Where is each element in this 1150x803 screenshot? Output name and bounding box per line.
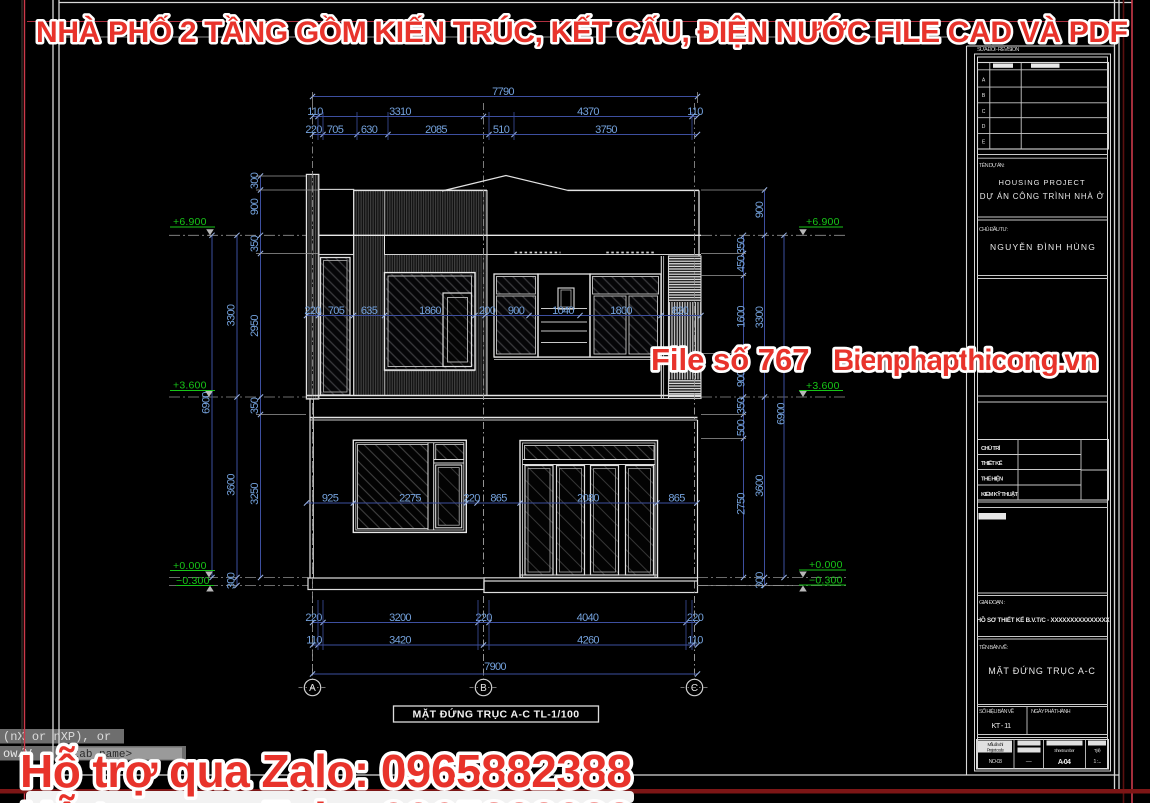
svg-text:2085: 2085 — [425, 124, 447, 136]
svg-text:4370: 4370 — [577, 106, 599, 118]
svg-text:350: 350 — [249, 397, 261, 414]
svg-text:110: 110 — [687, 106, 703, 118]
svg-text:630: 630 — [361, 124, 378, 136]
svg-text:SỐ HIỆU BẢN VẼ: SỐ HIỆU BẢN VẼ — [979, 707, 1015, 715]
svg-text:1 : ...: 1 : ... — [1093, 759, 1101, 765]
svg-text:A: A — [309, 683, 316, 694]
svg-text:635: 635 — [361, 305, 378, 317]
svg-text:350: 350 — [249, 235, 261, 252]
svg-text:110: 110 — [307, 106, 323, 118]
svg-text:500: 500 — [736, 419, 748, 436]
svg-text:1800: 1800 — [610, 305, 632, 317]
svg-text:220: 220 — [463, 492, 480, 504]
svg-text:NHÀ PHỐ 2 TẦNG GỒM KIẾN TRÚC,: NHÀ PHỐ 2 TẦNG GỒM KIẾN TRÚC, KẾT CẤU, Đ… — [36, 15, 1128, 49]
svg-text:3750: 3750 — [595, 124, 617, 136]
svg-text:HOUSING PROJECT: HOUSING PROJECT — [998, 178, 1085, 187]
svg-text:+0.000: +0.000 — [809, 559, 843, 571]
svg-text:900: 900 — [249, 198, 261, 215]
svg-text:3310: 3310 — [389, 106, 411, 118]
svg-text:925: 925 — [322, 492, 339, 504]
svg-text:Bienphapthicong.vn: Bienphapthicong.vn — [833, 344, 1098, 377]
svg-text:-----: ----- — [1026, 759, 1033, 765]
svg-text:3300: 3300 — [225, 304, 237, 326]
svg-text:4040: 4040 — [577, 612, 599, 624]
svg-text:1040: 1040 — [552, 305, 574, 317]
svg-text:Mẫu ấn chỉ: Mẫu ấn chỉ — [987, 741, 1003, 747]
svg-text:KIỂM KỸ THUẬT: KIỂM KỸ THUẬT — [981, 491, 1018, 498]
svg-text:+6.900: +6.900 — [173, 216, 207, 228]
svg-text:220: 220 — [305, 124, 322, 136]
svg-text:GIAI ĐOẠN :: GIAI ĐOẠN : — [979, 600, 1006, 606]
svg-text:450: 450 — [736, 255, 748, 272]
svg-text:3300: 3300 — [754, 306, 766, 328]
svg-text:2950: 2950 — [249, 315, 261, 337]
svg-text:300: 300 — [225, 572, 237, 589]
svg-text:110: 110 — [306, 634, 322, 646]
svg-text:Sheet number: Sheet number — [1054, 748, 1075, 753]
svg-text:1860: 1860 — [419, 305, 441, 317]
svg-text:+6.900: +6.900 — [806, 216, 840, 228]
svg-text:HỒ SƠ THIẾT KẾ B.V.T/C - XXXXX: HỒ SƠ THIẾT KẾ B.V.T/C - XXXXXXXXXXXXXXX — [977, 617, 1111, 624]
svg-text:110: 110 — [687, 634, 703, 646]
svg-text:865: 865 — [668, 492, 685, 504]
svg-text:7900: 7900 — [484, 661, 506, 673]
svg-text:300: 300 — [754, 572, 766, 589]
svg-text:1600: 1600 — [736, 306, 748, 328]
svg-text:3200: 3200 — [389, 612, 411, 624]
svg-text:B: B — [480, 683, 487, 694]
svg-text:THỂ HIỆN: THỂ HIỆN — [981, 475, 1003, 483]
svg-text:File số 767: File số 767 — [651, 342, 810, 377]
svg-text:KT - 11: KT - 11 — [992, 721, 1012, 730]
svg-text:MẶT ĐỨNG TRỤC A-C TL-1/100: MẶT ĐỨNG TRỤC A-C TL-1/100 — [413, 708, 580, 721]
svg-text:220: 220 — [687, 612, 704, 624]
svg-text:NGUYỄN ĐÌNH HÙNG: NGUYỄN ĐÌNH HÙNG — [990, 241, 1096, 252]
svg-text:C: C — [982, 109, 986, 115]
svg-text:TÊN BẢN VẼ:: TÊN BẢN VẼ: — [979, 643, 1008, 651]
svg-text:+3.600: +3.600 — [173, 380, 207, 392]
svg-text:2275: 2275 — [399, 492, 421, 504]
svg-text:705: 705 — [328, 305, 345, 317]
svg-text:7790: 7790 — [492, 86, 514, 98]
svg-text:220: 220 — [305, 612, 322, 624]
svg-text:900: 900 — [754, 201, 766, 218]
svg-text:NO-03: NO-03 — [989, 759, 1002, 765]
svg-text:THIẾT KẾ: THIẾT KẾ — [981, 460, 1003, 467]
svg-text:3600: 3600 — [754, 475, 766, 497]
svg-text:6900: 6900 — [776, 403, 788, 425]
svg-text:CHỦ TRÌ: CHỦ TRÌ — [981, 444, 1001, 452]
svg-text:200: 200 — [479, 305, 496, 317]
svg-text:3600: 3600 — [225, 474, 237, 496]
svg-text:A-04: A-04 — [1058, 759, 1071, 766]
svg-text:350: 350 — [736, 397, 748, 414]
svg-text:300: 300 — [249, 172, 261, 189]
svg-text:Project code: Project code — [987, 748, 1005, 753]
svg-text:3420: 3420 — [389, 634, 411, 646]
svg-text:DỰ ÁN CÔNG TRÌNH NHÀ Ở: DỰ ÁN CÔNG TRÌNH NHÀ Ở — [980, 192, 1104, 201]
svg-text:(nX or nXP), or: (nX or nXP), or — [3, 730, 111, 744]
svg-text:2750: 2750 — [736, 493, 748, 515]
svg-text:TÊN DỰ ÁN:: TÊN DỰ ÁN: — [979, 161, 1005, 169]
svg-text:D: D — [982, 124, 986, 130]
svg-text:NGÀY PHÁT HÀNH: NGÀY PHÁT HÀNH — [1031, 708, 1071, 715]
svg-text:220: 220 — [304, 305, 321, 317]
svg-text:4260: 4260 — [577, 634, 599, 646]
svg-text:350: 350 — [736, 237, 748, 254]
svg-text:6900: 6900 — [200, 392, 212, 414]
svg-text:CHỦ ĐẦU TƯ:: CHỦ ĐẦU TƯ: — [979, 226, 1009, 233]
svg-text:510: 510 — [493, 124, 510, 136]
svg-text:Hỗ trợ qua Zalo: 0965882388: Hỗ trợ qua Zalo: 0965882388 — [20, 745, 632, 797]
svg-text:820: 820 — [672, 305, 689, 317]
svg-text:900: 900 — [508, 305, 525, 317]
svg-text:705: 705 — [327, 124, 344, 136]
svg-text:865: 865 — [490, 492, 507, 504]
svg-text:3250: 3250 — [249, 483, 261, 505]
svg-text:MẶT ĐỨNG TRỤC A-C: MẶT ĐỨNG TRỤC A-C — [988, 666, 1095, 676]
svg-text:2080: 2080 — [577, 492, 599, 504]
svg-text:C: C — [691, 683, 698, 694]
